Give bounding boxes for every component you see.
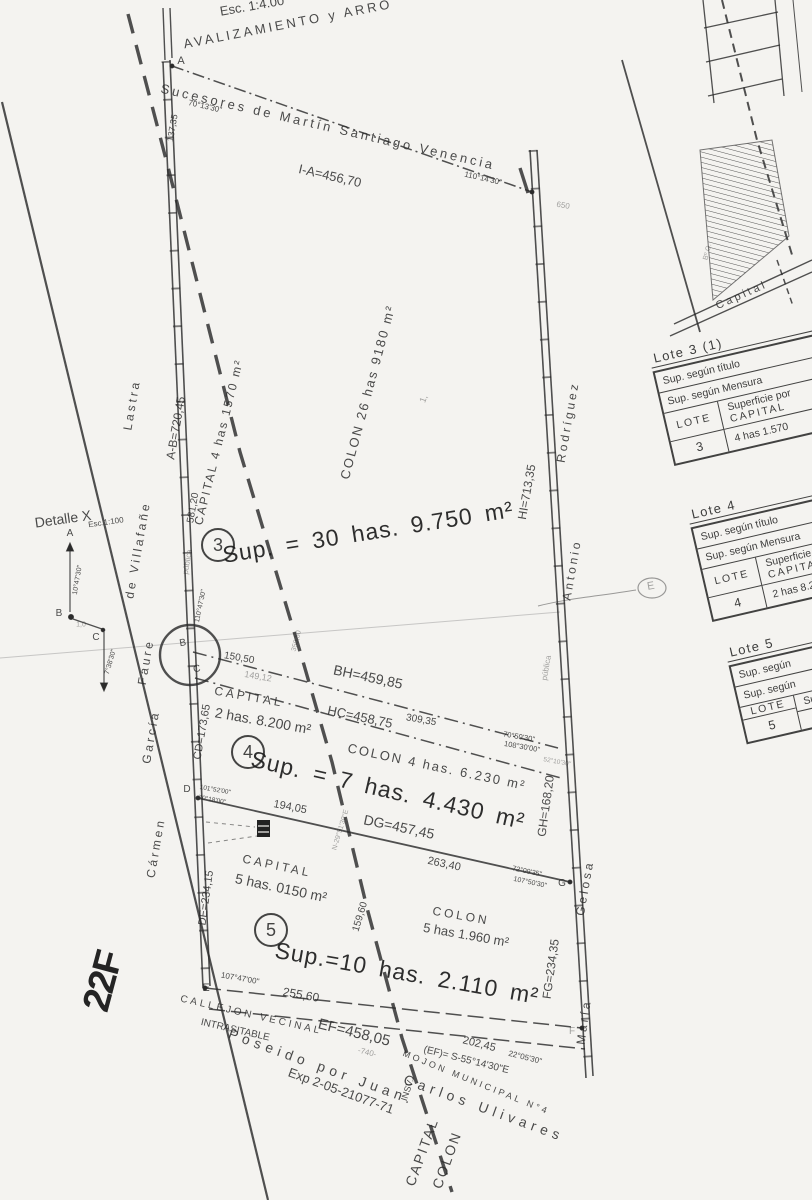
detail-dist-1-0: 1,0 <box>76 621 86 628</box>
survey-linework <box>0 0 812 1200</box>
detail-point-c: C <box>92 633 99 644</box>
building-symbol <box>257 820 270 837</box>
point-c: C <box>193 664 202 676</box>
detail-point-b: B <box>56 609 63 620</box>
point-g: G <box>558 879 566 890</box>
point-b: B <box>179 638 187 649</box>
scanned-survey-plan: Esc. 1:4.00AVALIZAMIENTO y ARROSucesores… <box>0 0 812 1200</box>
point-e: E <box>202 983 209 995</box>
point-a: A <box>177 56 184 68</box>
point-d: D <box>183 785 190 796</box>
detail-point-a: A <box>67 529 74 540</box>
